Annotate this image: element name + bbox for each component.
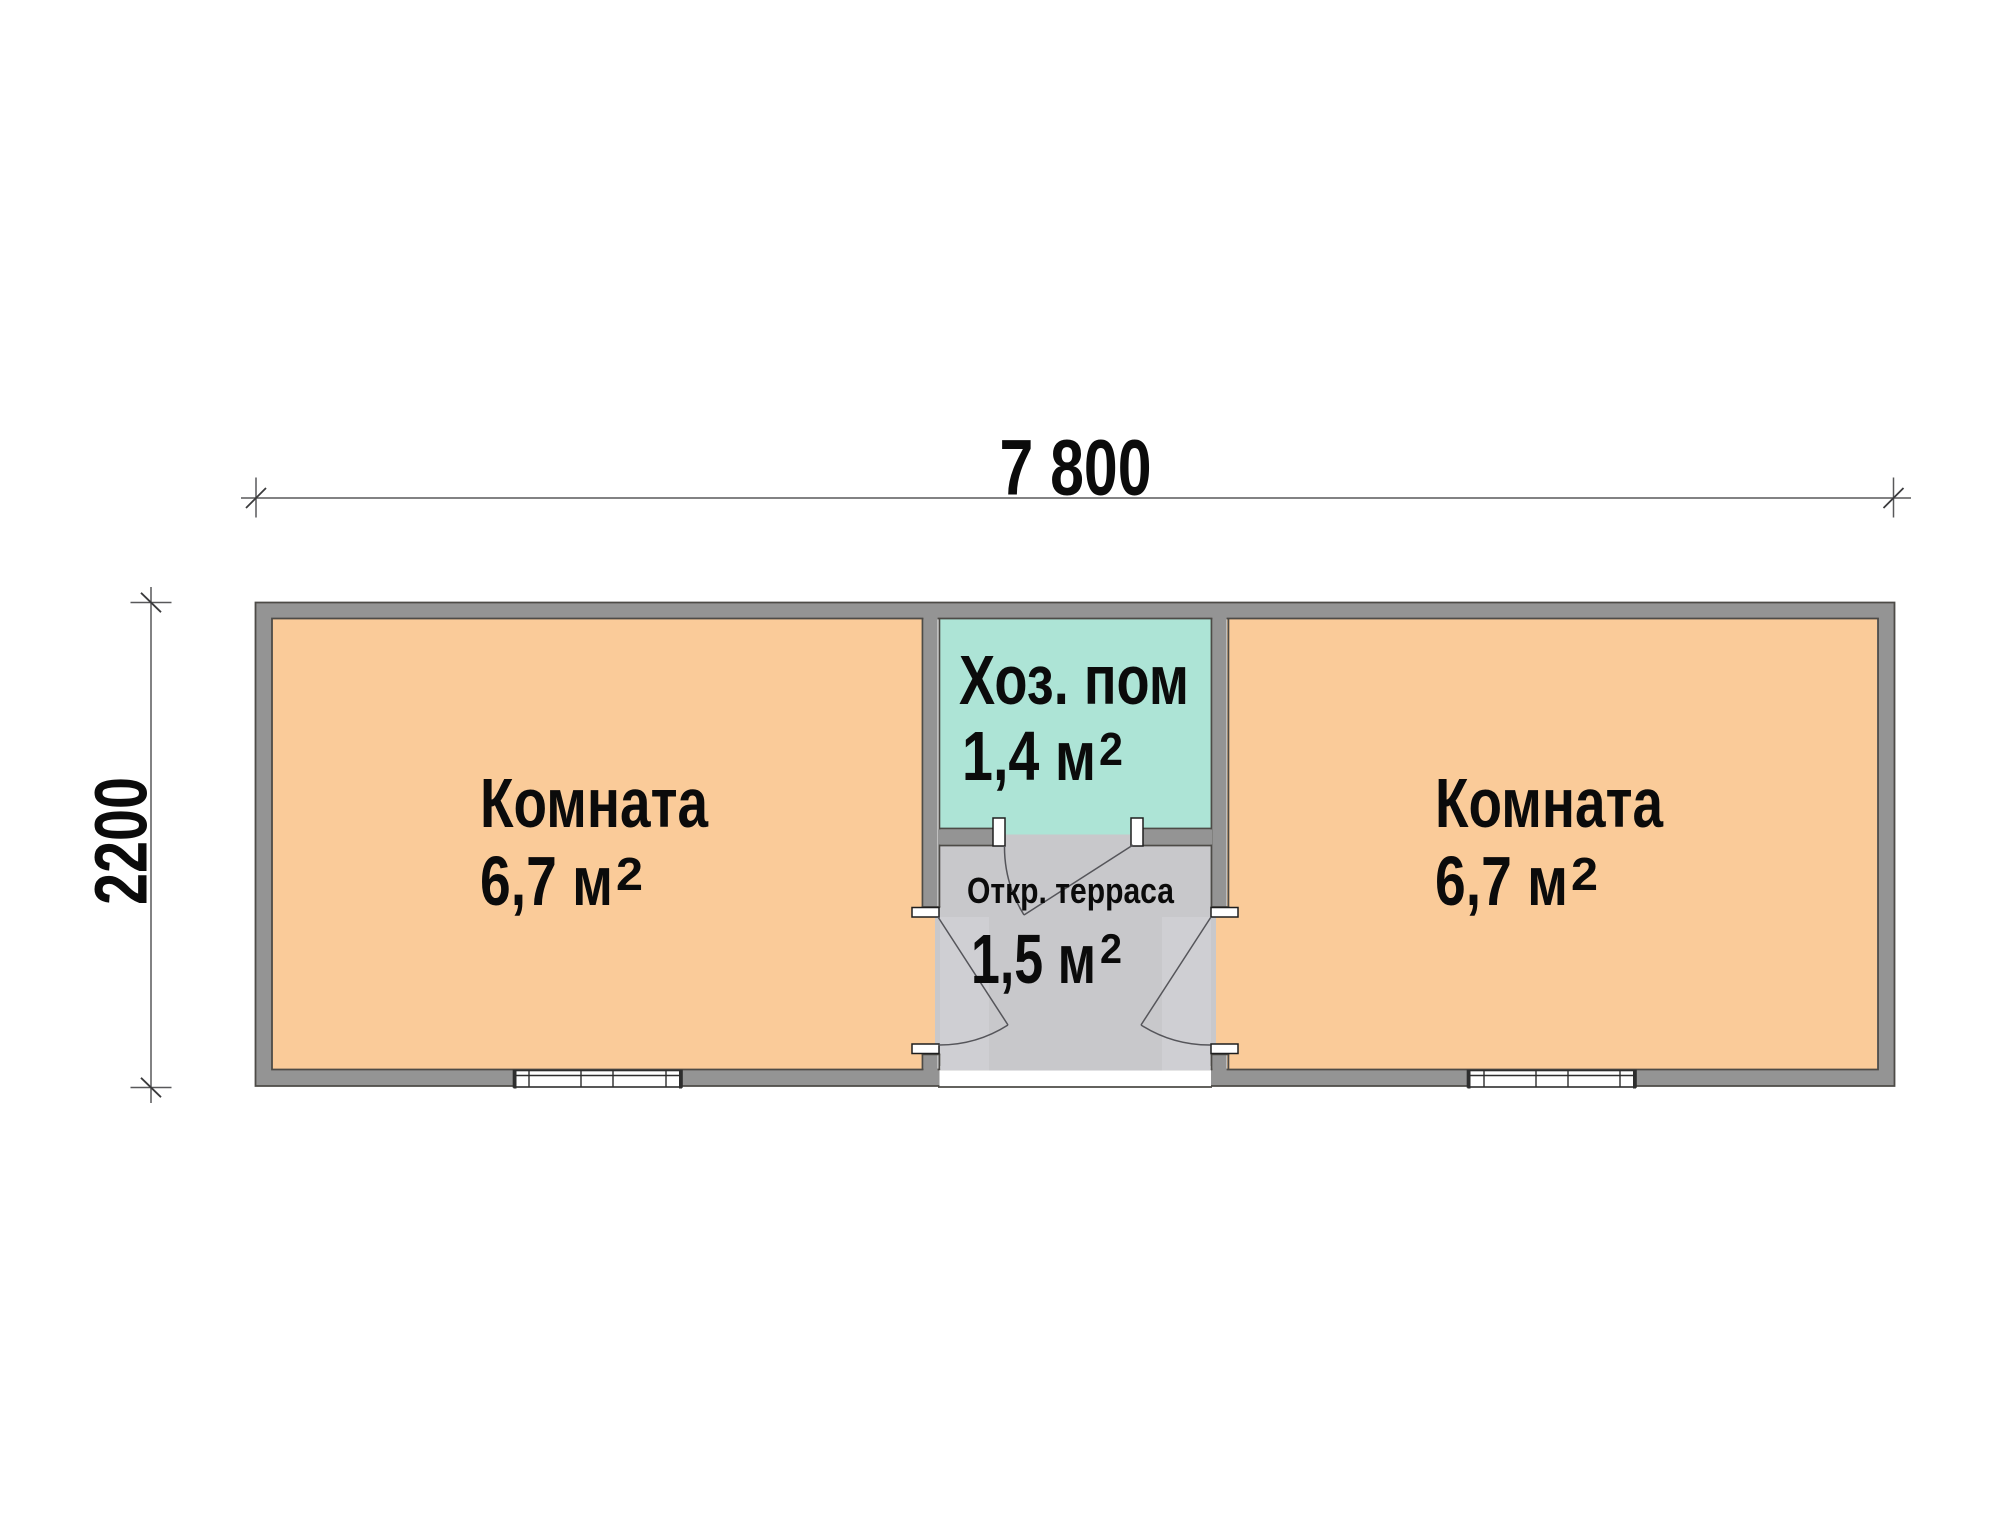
svg-text:2: 2 <box>1100 925 1122 972</box>
svg-text:6,7 м: 6,7 м <box>480 842 613 920</box>
svg-text:7 800: 7 800 <box>1000 423 1152 512</box>
svg-text:1,5 м: 1,5 м <box>971 920 1096 998</box>
svg-text:2: 2 <box>1571 848 1598 900</box>
svg-text:Хоз. пом: Хоз. пом <box>959 641 1189 719</box>
svg-text:2200: 2200 <box>80 777 163 905</box>
svg-text:2: 2 <box>1099 723 1123 775</box>
svg-text:6,7 м: 6,7 м <box>1435 842 1568 920</box>
svg-text:Комната: Комната <box>480 764 709 842</box>
svg-text:1,4 м: 1,4 м <box>962 717 1096 795</box>
svg-text:Комната: Комната <box>1435 764 1664 842</box>
svg-text:Откр. терраса: Откр. терраса <box>967 870 1175 911</box>
svg-text:2: 2 <box>616 848 643 900</box>
